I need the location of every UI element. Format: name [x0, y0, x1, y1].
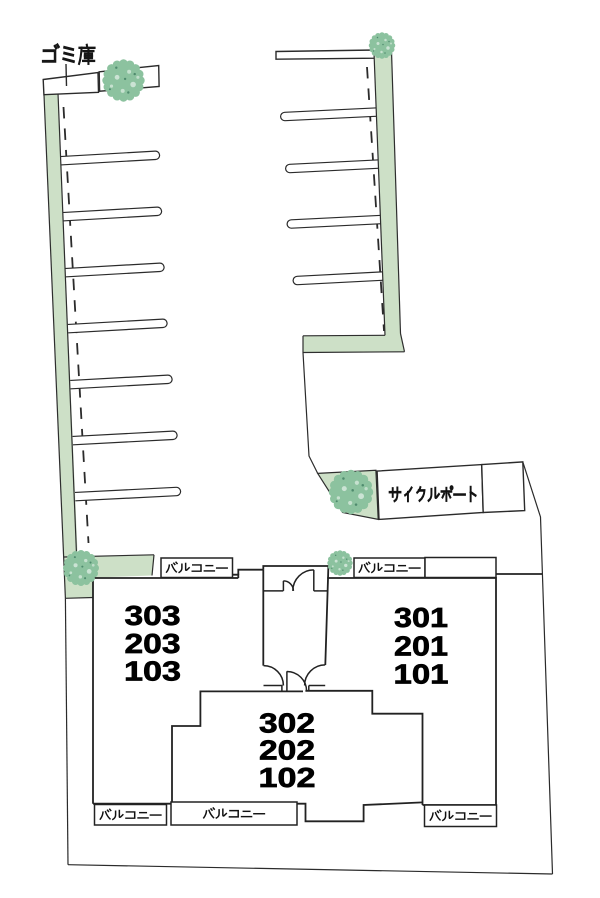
- svg-text:203: 203: [125, 628, 181, 659]
- svg-text:101: 101: [394, 658, 449, 689]
- svg-text:202: 202: [259, 735, 315, 766]
- svg-text:103: 103: [124, 655, 181, 686]
- svg-text:201: 201: [394, 630, 448, 661]
- svg-text:303: 303: [125, 600, 181, 631]
- svg-text:102: 102: [259, 762, 316, 793]
- svg-text:301: 301: [394, 602, 448, 633]
